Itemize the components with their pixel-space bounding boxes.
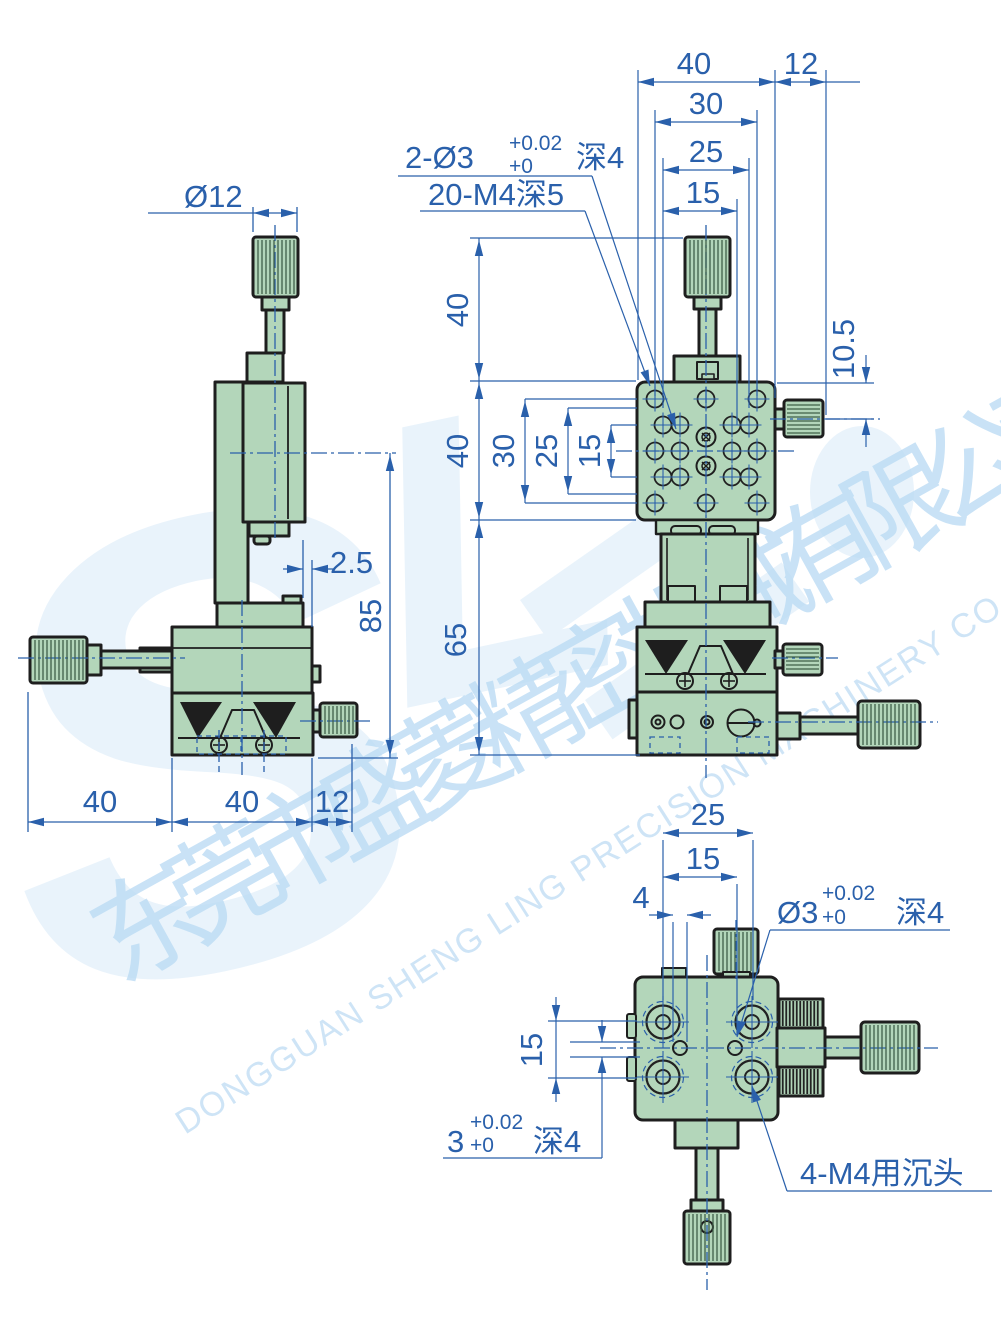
dim-h40-plate: 40 [440,434,475,468]
label-pin-depth: 深4 [896,895,944,930]
dim-h40-top: 40 [440,293,475,327]
base-side-tab [629,700,637,738]
dimension-arrowhead [687,911,703,919]
bracket-arm [217,603,303,627]
technical-drawing-canvas: S L 东莞市盛菱精密机械有限公司 DONGGUAN SHENG LING PR… [0,0,1001,1326]
y-knob-shaft [101,651,172,668]
dimension-arrowhead [655,118,671,126]
dimension-arrowhead [741,118,757,126]
dim-25: 25 [689,134,723,169]
label-pin-tol-upper: +0.02 [509,132,562,155]
label-pin-tol-upper: +0.02 [822,882,875,905]
dim-width-right-12: 12 [315,784,349,819]
dimension-arrowhead [721,873,737,881]
label-pin-tol-lower: +0 [509,155,533,178]
carriage-nub [249,522,289,536]
carriage-foot [254,536,270,544]
dim-rows-30: 30 [486,434,521,468]
dim-top-12: 12 [784,46,818,81]
x-knob-shaft [800,717,860,734]
dimension-arrowhead [737,829,753,837]
label-slot-depth: 深4 [533,1124,581,1159]
dimension-arrowhead [638,78,654,86]
label-pin-tol-lower: +0 [822,906,846,929]
z-axis-knob [685,237,730,297]
dim-height-85: 85 [353,599,388,633]
label-pin-hole: Ø3 [777,895,818,930]
top-block-tab [702,374,714,379]
dimension-arrowhead [721,207,737,215]
label-pin-holes: 2-Ø3 [405,140,474,175]
label-m4-holes: 20-M4深5 [428,177,564,212]
dimension-arrowhead [607,459,615,475]
y-knob-collar [87,645,101,675]
shaft-step-block [247,353,283,382]
column-notch [720,586,747,602]
dimension-arrowhead [253,209,269,217]
side-nub [312,666,320,682]
dim-offset-2-5: 2.5 [330,545,373,580]
dimension-arrowhead [657,911,673,919]
knob-collar [694,297,721,309]
dim-15: 15 [686,175,720,210]
dim-knob-diameter: Ø12 [184,179,243,214]
dim-left-15: 15 [514,1033,549,1067]
left-edge-bump [627,1014,636,1038]
dim-25: 25 [691,797,725,832]
dimension-arrowhead [733,166,749,174]
dimension-arrowhead [663,166,679,174]
dimension-arrowhead [598,1057,606,1073]
dim-top-40: 40 [677,46,711,81]
label-counterbore: 4-M4用沉头 [800,1156,964,1191]
dim-15: 15 [686,841,720,876]
dim-rows-25: 25 [529,434,564,468]
dimension-arrowhead [663,873,679,881]
dim-h65: 65 [438,623,473,657]
label-slot-3: 3 [447,1124,464,1159]
x-knob-step [777,713,800,739]
dimension-arrowhead [475,240,483,256]
mid-block [645,602,770,627]
drawing-sheet: S L 东莞市盛菱精密机械有限公司 DONGGUAN SHENG LING PR… [0,0,1001,1326]
dim-width-mid-40: 40 [225,784,259,819]
dimension-arrowhead [598,1026,606,1042]
label-slot-tol-lower: +0 [470,1134,494,1157]
dim-30: 30 [689,86,723,121]
dimension-arrowhead [281,209,297,217]
dim-4: 4 [632,880,649,915]
dimension-arrowhead [552,1005,560,1021]
dimension-arrowhead [759,78,775,86]
dimension-arrowhead [607,427,615,443]
dim-width-left-40: 40 [83,784,117,819]
dim-knob-offset-10-5: 10.5 [826,319,861,379]
dimension-arrowhead [552,1078,560,1094]
dimension-arrowhead [663,207,679,215]
dim-rows-15: 15 [572,434,607,468]
dimension-arrowhead [862,367,870,383]
label-pin-depth: 深4 [576,140,624,175]
column-notch [668,586,695,602]
label-slot-tol-upper: +0.02 [470,1111,523,1134]
knob-shaft [699,309,716,356]
